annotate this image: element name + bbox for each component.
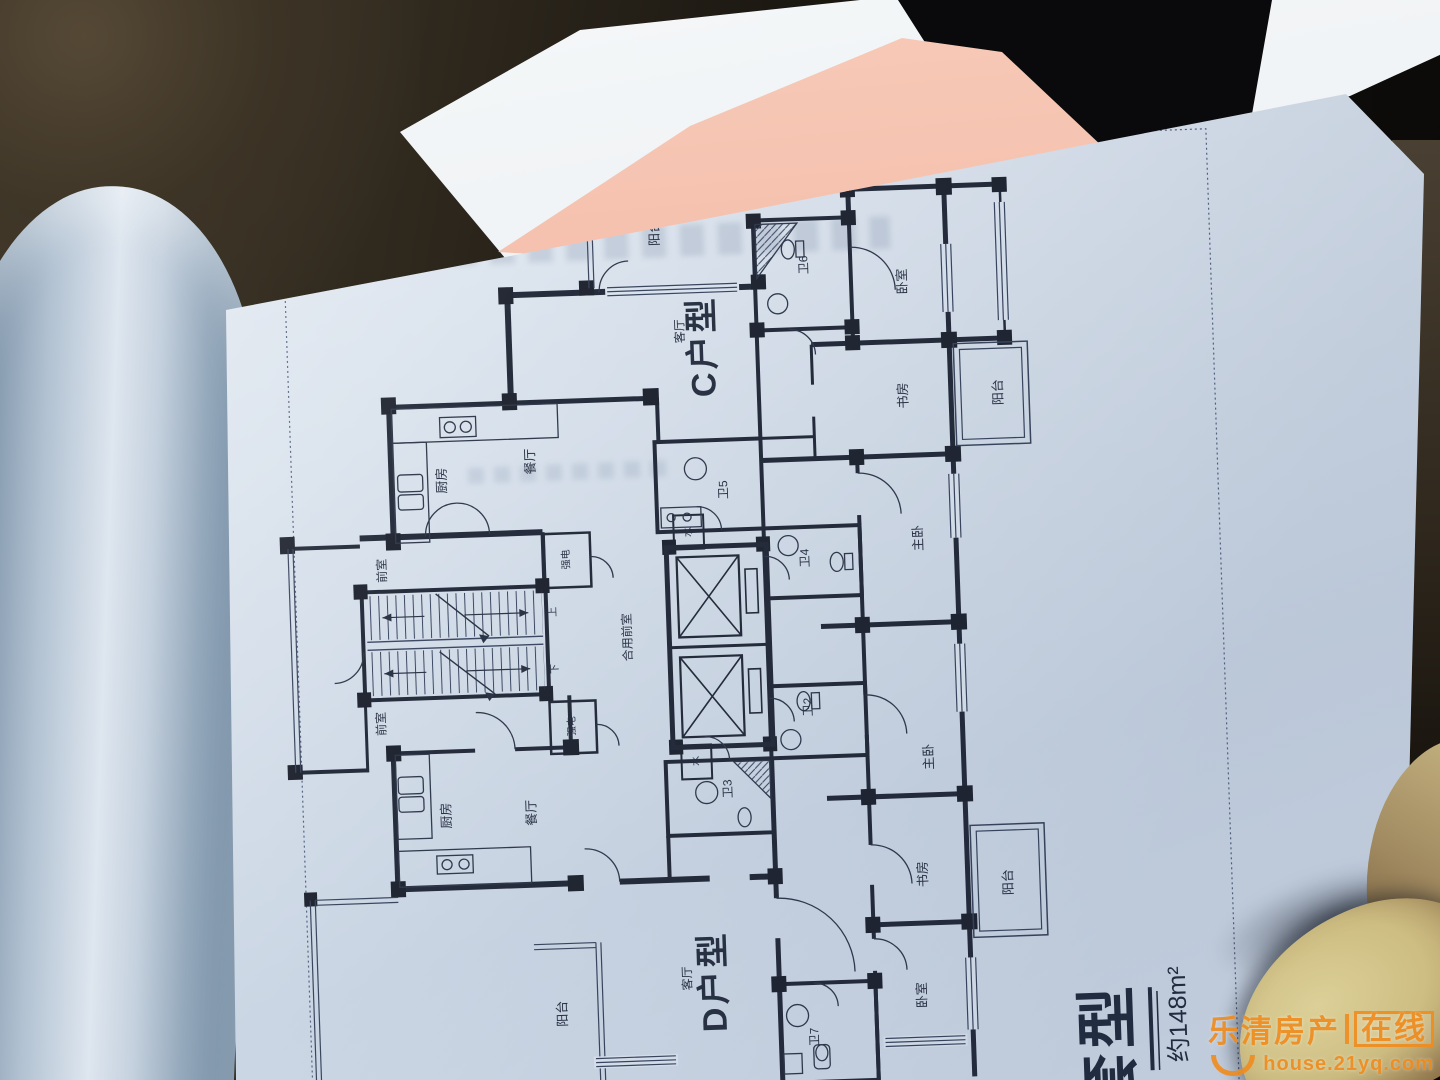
label-foyer-1: 前室 (374, 559, 390, 584)
caption-area: 约148m² (1163, 966, 1194, 1063)
caption-title: 套型 (1073, 980, 1147, 1080)
label-unit-c: C户型 (682, 295, 724, 398)
label-bedroom-1: 卧室 (894, 268, 910, 295)
label-study-2: 书房 (915, 861, 931, 888)
label-bath5: 卫5 (716, 480, 731, 499)
elevator-core (666, 544, 773, 747)
label-shared-foyer: 合用前室 (619, 613, 636, 662)
label-elec-2: 强电 (565, 716, 579, 736)
label-kitchen-c: 厨房 (434, 467, 450, 494)
label-dining-d: 餐厅 (523, 799, 539, 826)
photo-scene: 阳台 卫6 卧室 书房 阳台 客厅 C户型 餐厅 厨房 卫5 主卧 前室 强电 … (0, 0, 1440, 1080)
watermark-brand: 乐清房产 (1208, 1006, 1340, 1051)
label-bath4: 卫4 (797, 548, 812, 567)
label-study-1: 书房 (895, 382, 911, 409)
label-bath7: 卫7 (807, 1027, 822, 1046)
caption: 套型 约148m² (1073, 966, 1196, 1080)
watermark-brand-box: 在线 (1354, 1011, 1434, 1047)
label-dining-c: 餐厅 (522, 448, 538, 475)
elevator-shaft-2 (680, 655, 763, 738)
label-bath2: 卫2 (801, 697, 816, 716)
label-water-2: 水 (690, 756, 702, 766)
label-balcony-bl: 阳台 (554, 1000, 570, 1027)
label-bath3: 卫3 (720, 779, 735, 798)
watermark-swoosh-icon (1211, 1055, 1255, 1076)
label-balcony-r1: 阳台 (990, 379, 1006, 406)
label-master-2: 主卧 (921, 744, 937, 771)
label-master-1: 主卧 (910, 525, 926, 552)
label-elec-1: 强电 (559, 549, 573, 569)
elevator-shaft-1 (676, 555, 759, 638)
label-stairs-up: 上 (547, 607, 559, 617)
label-stairs-down: 下 (550, 664, 561, 674)
label-unit-d: D户型 (694, 930, 736, 1033)
label-bedroom-2: 卧室 (914, 982, 930, 1009)
label-living-d: 客厅 (679, 966, 695, 991)
watermark-url: house.21yq.com (1263, 1053, 1434, 1076)
label-kitchen-d: 厨房 (438, 802, 454, 829)
label-foyer-2: 前室 (373, 712, 389, 737)
watermark: 乐清房产 在线 house.21yq.com (1208, 1006, 1434, 1076)
watermark-divider (1345, 1014, 1349, 1044)
label-bath6: 卫6 (796, 255, 811, 274)
label-balcony-r2: 阳台 (1000, 869, 1016, 896)
staircase (366, 590, 546, 705)
label-water-1: 水 (682, 527, 694, 537)
